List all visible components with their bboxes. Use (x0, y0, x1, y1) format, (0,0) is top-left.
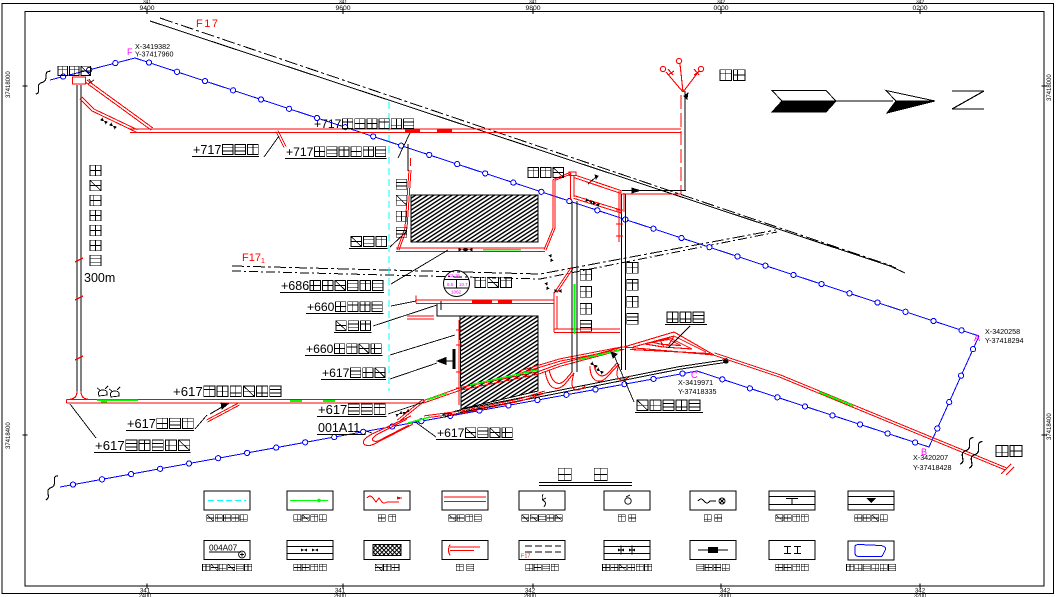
svg-text:+617: +617 (318, 402, 347, 417)
svg-text:9400: 9400 (139, 5, 154, 12)
svg-text:+717: +717 (193, 143, 221, 157)
svg-text:001A11: 001A11 (318, 421, 360, 435)
svg-text:9800: 9800 (525, 5, 540, 12)
svg-text:F17: F17 (242, 252, 261, 264)
svg-text:0000: 0000 (713, 5, 728, 12)
svg-text:+617: +617 (173, 384, 203, 399)
svg-text:37418400: 37418400 (6, 422, 12, 449)
svg-text:004A07: 004A07 (209, 544, 238, 553)
svg-text:37418000: 37418000 (1047, 74, 1053, 101)
svg-text:10.7: 10.7 (459, 282, 468, 287)
svg-text:0200: 0200 (912, 5, 927, 12)
svg-text:1062: 1062 (451, 290, 462, 295)
svg-text:Y-37418335: Y-37418335 (678, 387, 717, 396)
svg-text:A: A (974, 333, 980, 343)
svg-text:+617: +617 (322, 366, 350, 380)
svg-text:+660: +660 (306, 342, 334, 356)
svg-text:X-3420258: X-3420258 (985, 327, 1020, 336)
svg-text:Y-37418294: Y-37418294 (985, 336, 1024, 345)
svg-text:1: 1 (261, 258, 265, 265)
svg-text:300m: 300m (84, 271, 115, 285)
svg-text:K2-16: K2-16 (448, 273, 460, 278)
svg-text:+617: +617 (127, 416, 156, 431)
svg-text:2800: 2800 (524, 594, 536, 597)
svg-text:+686: +686 (281, 279, 309, 293)
svg-text:2400: 2400 (139, 594, 151, 597)
svg-text:+617: +617 (95, 438, 125, 453)
svg-text:8.6: 8.6 (447, 282, 454, 287)
svg-text:3200: 3200 (914, 594, 926, 597)
svg-text:Y-37417960: Y-37417960 (135, 50, 174, 59)
svg-text:F17: F17 (196, 18, 219, 30)
svg-text:+660: +660 (307, 300, 335, 314)
svg-text:X-3419971: X-3419971 (678, 378, 713, 387)
svg-text:Y-37418428: Y-37418428 (913, 463, 952, 472)
svg-text:+617: +617 (437, 426, 465, 440)
svg-text:X-3420207: X-3420207 (913, 453, 948, 462)
svg-text:+717: +717 (314, 117, 342, 131)
svg-text:37418000: 37418000 (6, 71, 12, 98)
svg-text:37418400: 37418400 (1047, 413, 1053, 440)
svg-text:3000: 3000 (719, 594, 731, 597)
svg-text:F17: F17 (521, 554, 530, 560)
svg-text:9600: 9600 (335, 5, 350, 12)
svg-text:+717: +717 (286, 145, 314, 159)
svg-text:F: F (127, 47, 133, 57)
svg-text:2600: 2600 (334, 594, 346, 597)
